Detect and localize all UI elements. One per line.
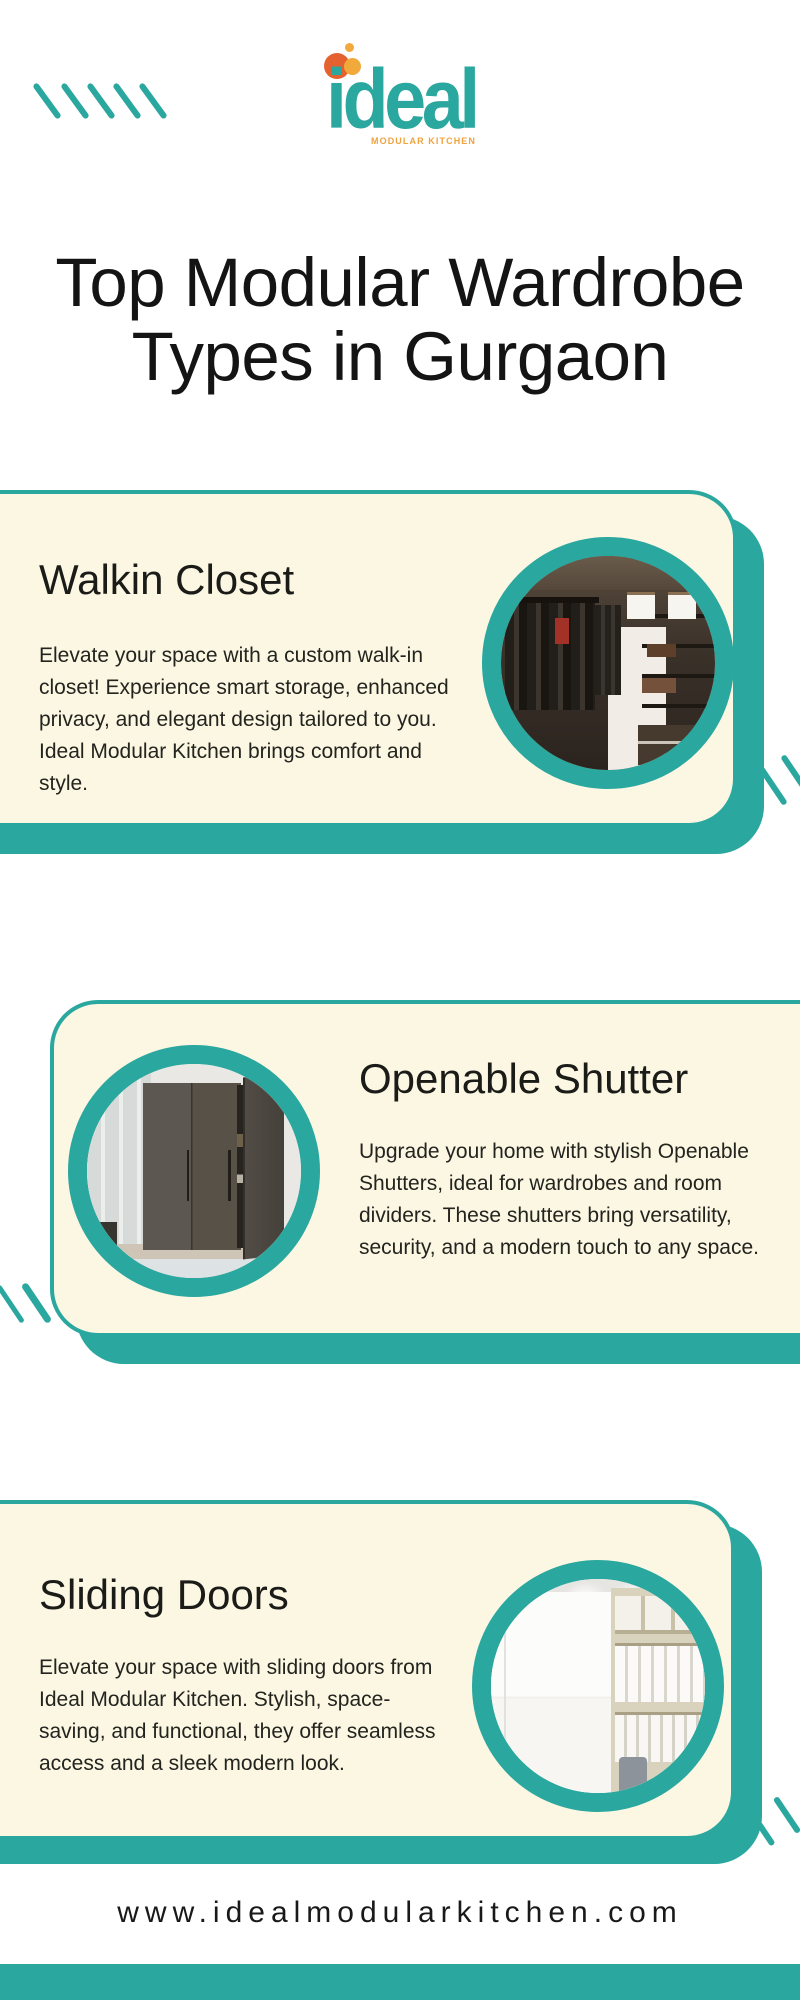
card-openable-shutter: Openable Shutter Upgrade your home with … xyxy=(50,1000,800,1337)
card-heading: Openable Shutter xyxy=(359,1058,688,1100)
hanging-shirts xyxy=(615,1643,705,1702)
teal-slash-icon xyxy=(780,754,800,794)
walk-in-closet-photo xyxy=(501,556,715,770)
teal-slash-icon xyxy=(773,1796,800,1834)
teal-slash-icon xyxy=(60,82,90,120)
card-heading: Walkin Closet xyxy=(39,559,294,601)
photo-ring xyxy=(68,1045,320,1297)
card-walkin-closet: Walkin Closet Elevate your space with a … xyxy=(0,490,737,827)
teal-slash-icon xyxy=(21,1282,53,1324)
logo-wordmark: ideal xyxy=(326,57,476,141)
page-title: Top Modular Wardrobe Types in Gurgaon xyxy=(0,246,800,394)
red-garment xyxy=(555,618,570,644)
photo-ring xyxy=(482,537,734,789)
door-handle xyxy=(228,1150,231,1201)
title-line-2: Types in Gurgaon xyxy=(0,320,800,394)
title-line-1: Top Modular Wardrobe xyxy=(0,246,800,320)
suitcase xyxy=(619,1757,647,1793)
sliding-door-wardrobe-photo xyxy=(491,1579,705,1793)
hanging-shirts xyxy=(615,1712,705,1762)
hanging-suits xyxy=(595,605,621,695)
folded-clothes xyxy=(647,644,677,657)
hanging-clothes xyxy=(505,603,595,710)
logo-tagline: MODULAR KITCHEN xyxy=(326,136,476,146)
door-handle xyxy=(187,1150,190,1201)
card-heading: Sliding Doors xyxy=(39,1574,289,1616)
teal-slash-icon xyxy=(138,82,168,120)
website-url: www.idealmodularkitchen.com xyxy=(0,1896,800,1930)
bottom-accent-bar xyxy=(0,1964,800,2000)
teal-slash-icon xyxy=(112,82,142,120)
teal-slash-icon xyxy=(32,82,62,120)
closet-drawers xyxy=(638,725,694,770)
card-sliding-doors: Sliding Doors Elevate your space with sl… xyxy=(0,1500,735,1840)
card-description: Elevate your space with a custom walk-in… xyxy=(39,640,459,800)
card-description: Upgrade your home with stylish Openable … xyxy=(359,1136,781,1264)
top-shelf-boxes xyxy=(615,1596,705,1634)
teal-slash-icon xyxy=(86,82,116,120)
folded-clothes xyxy=(642,678,676,693)
closet-ceiling xyxy=(501,556,715,590)
dark-object xyxy=(96,1222,117,1248)
teal-slash-icon xyxy=(0,1284,25,1323)
storage-box xyxy=(668,592,696,619)
wardrobe-doors xyxy=(143,1083,241,1250)
door-seam xyxy=(504,1592,506,1793)
logo-dot-small-icon xyxy=(345,43,354,52)
infographic-page: ideal MODULAR KITCHEN Top Modular Wardro… xyxy=(0,0,800,2000)
photo-ring xyxy=(472,1560,724,1812)
floor-rug xyxy=(130,1259,301,1278)
white-sliding-door xyxy=(491,1592,614,1793)
storage-box xyxy=(627,592,655,619)
window-glass xyxy=(87,1064,151,1248)
open-door-panel xyxy=(243,1072,284,1259)
openable-shutter-wardrobe-photo xyxy=(87,1064,301,1278)
card-description: Elevate your space with sliding doors fr… xyxy=(39,1652,454,1780)
